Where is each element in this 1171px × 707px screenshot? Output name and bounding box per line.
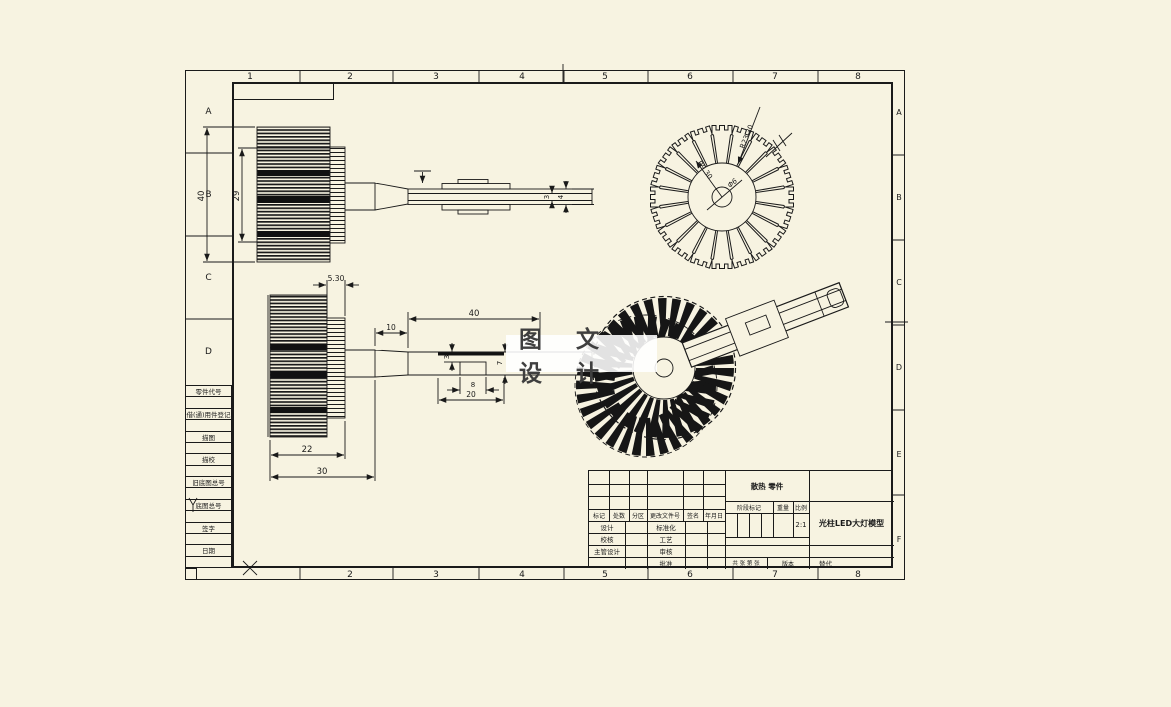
zone-number-bottom: 8 [848, 569, 868, 581]
drawing-title: 光柱LED大灯模型 [809, 501, 894, 545]
zone-number-top: 8 [848, 71, 868, 83]
zone-number-top: 4 [512, 71, 532, 83]
watermark: 图 文 设 计 [506, 335, 657, 372]
sign-row-label: 主管设计 [589, 545, 625, 557]
substitute-label: 替代 [809, 557, 879, 569]
zone-number-bottom: 3 [426, 569, 446, 581]
zone-letter-left: A [185, 106, 232, 118]
version-label: 版本 [767, 557, 809, 569]
zone-letter-left: B [185, 189, 232, 201]
sign-row-label: 工艺 [647, 533, 685, 545]
margin-table-label: 日期 [186, 544, 231, 555]
margin-table-empty [186, 533, 231, 544]
title-block-line [589, 484, 725, 485]
zone-number-top: 7 [765, 71, 785, 83]
title-block-line [725, 545, 894, 546]
zone-letter-right: E [893, 449, 905, 461]
zone-letter-right: F [893, 534, 905, 546]
zone-number-bottom: 2 [340, 569, 360, 581]
margin-table-empty [186, 487, 231, 498]
revision-header-cell: 处数 [609, 509, 629, 521]
zone-number-top: 2 [340, 71, 360, 83]
margin-table-empty [186, 396, 231, 407]
margin-table: 零件代号 借(通)用件登记 描图 描校 旧底图总号 底图总号 签字 日期 [185, 385, 232, 568]
revision-header-cell: 年月日 [703, 509, 725, 521]
revision-header-cell: 分区 [629, 509, 647, 521]
stage-label: 阶段标记 [725, 501, 773, 513]
margin-table-empty [186, 419, 231, 430]
material-mark: 散热 零件 [725, 471, 809, 501]
corner-mark-box [185, 568, 197, 580]
margin-table-label: 描校 [186, 453, 231, 464]
margin-table-label: 签字 [186, 522, 231, 533]
zone-letter-right: A [893, 107, 905, 119]
revision-header-cell: 标记 [589, 509, 609, 521]
drawing-code-box [233, 82, 334, 100]
zone-letter-right: C [893, 277, 905, 289]
revision-header-cell: 更改文件号 [647, 509, 683, 521]
zone-number-top: 6 [680, 71, 700, 83]
sign-row-label: 审核 [647, 545, 685, 557]
margin-table-empty [186, 510, 231, 521]
weight-label: 重量 [773, 501, 793, 513]
margin-table-label: 描图 [186, 431, 231, 442]
sign-row-label: 设计 [589, 521, 625, 533]
zone-number-top: 1 [240, 71, 260, 83]
margin-table-empty [186, 465, 231, 476]
zone-letter-right: B [893, 192, 905, 204]
sign-row-label: 批准 [647, 557, 685, 569]
zone-number-top: 5 [595, 71, 615, 83]
margin-table-label: 旧底图总号 [186, 476, 231, 487]
zone-number-bottom: 4 [512, 569, 532, 581]
scale-label: 比例 [793, 501, 809, 513]
margin-table-empty [186, 442, 231, 453]
scale-value: 2:1 [793, 513, 809, 537]
zone-number-bottom: 6 [680, 569, 700, 581]
margin-table-label: 底图总号 [186, 499, 231, 510]
title-block-line [761, 513, 762, 537]
zone-letter-left: D [185, 346, 232, 358]
margin-table-label: 零件代号 [186, 386, 231, 396]
sign-row-label: 校核 [589, 533, 625, 545]
margin-table-label: 借(通)用件登记 [186, 408, 231, 419]
title-block-line [737, 513, 738, 537]
sign-row-label: 标准化 [647, 521, 685, 533]
cad-drawing-page: { "colors": { "paper": "#f7f3e1", "line"… [0, 0, 1171, 707]
title-block-line [725, 537, 809, 538]
revision-header-cell: 签名 [683, 509, 703, 521]
zone-number-bottom: 7 [765, 569, 785, 581]
margin-table-empty [186, 556, 231, 567]
zone-letter-right: D [893, 362, 905, 374]
title-block-line [589, 496, 725, 497]
sheets-label: 共 张 第 张 [725, 557, 767, 569]
zone-number-bottom: 5 [595, 569, 615, 581]
title-block-line [749, 513, 750, 537]
title-block: 散热 零件 标记 处数 分区 更改文件号 签名 年月日 设计 校核 主管设计 标… [588, 470, 893, 568]
zone-number-top: 3 [426, 71, 446, 83]
zone-letter-left: C [185, 272, 232, 284]
